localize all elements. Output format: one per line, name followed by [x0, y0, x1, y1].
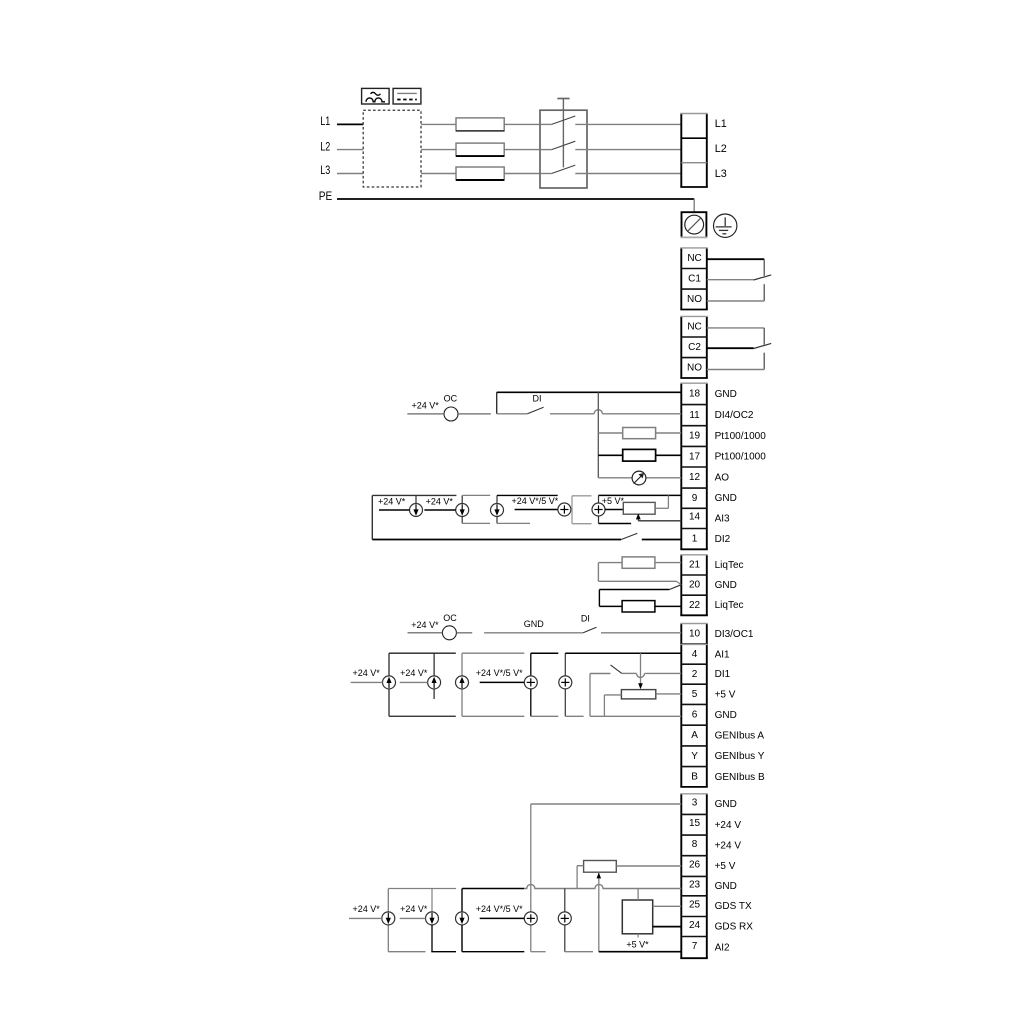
svg-text:NO: NO: [687, 363, 702, 374]
svg-text:OC: OC: [443, 613, 457, 623]
svg-text:A: A: [691, 730, 698, 741]
svg-text:+24 V*/5 V*: +24 V*/5 V*: [476, 904, 523, 914]
svg-text:LiqTec: LiqTec: [715, 600, 744, 611]
svg-text:+5 V*: +5 V*: [626, 940, 649, 950]
svg-text:C1: C1: [688, 274, 701, 285]
svg-text:2: 2: [692, 669, 698, 680]
svg-text:+24 V: +24 V: [715, 840, 742, 851]
svg-text:AI3: AI3: [715, 513, 730, 524]
svg-text:GND: GND: [715, 881, 737, 892]
svg-text:DI: DI: [581, 613, 590, 623]
svg-text:+24 V*: +24 V*: [400, 668, 428, 678]
svg-text:21: 21: [689, 560, 701, 571]
svg-text:19: 19: [689, 431, 701, 442]
svg-text:DI: DI: [533, 394, 542, 404]
svg-text:+24 V*: +24 V*: [353, 668, 381, 678]
svg-text:GDS RX: GDS RX: [715, 922, 754, 933]
svg-text:20: 20: [689, 580, 701, 591]
svg-text:17: 17: [689, 451, 701, 462]
svg-text:DI3/OC1: DI3/OC1: [715, 629, 754, 640]
svg-text:+24 V*: +24 V*: [353, 904, 381, 914]
svg-text:24: 24: [689, 920, 701, 931]
svg-text:12: 12: [689, 472, 701, 483]
svg-text:3: 3: [692, 798, 698, 809]
svg-text:Pt100/1000: Pt100/1000: [715, 452, 767, 463]
svg-text:5: 5: [692, 689, 698, 700]
svg-text:+24 V*: +24 V*: [412, 400, 440, 410]
svg-text:+24 V*/5 V*: +24 V*/5 V*: [512, 496, 559, 506]
svg-text:LiqTec: LiqTec: [715, 560, 744, 571]
svg-text:GND: GND: [715, 580, 737, 591]
svg-text:+24 V*: +24 V*: [411, 620, 439, 630]
svg-text:+24 V*: +24 V*: [400, 904, 428, 914]
svg-text:L2: L2: [320, 141, 330, 153]
svg-text:AO: AO: [715, 473, 730, 484]
svg-text:7: 7: [692, 941, 698, 952]
svg-text:14: 14: [689, 512, 701, 523]
svg-text:GND: GND: [715, 493, 737, 504]
svg-text:OC: OC: [444, 394, 458, 404]
svg-text:DI1: DI1: [715, 669, 731, 680]
svg-text:DI4/OC2: DI4/OC2: [715, 410, 754, 421]
svg-text:GENIbus Y: GENIbus Y: [715, 751, 765, 762]
svg-text:8: 8: [692, 839, 698, 850]
svg-text:9: 9: [692, 493, 698, 504]
svg-text:10: 10: [689, 629, 701, 640]
svg-text:+24 V*/5 V*: +24 V*/5 V*: [476, 668, 523, 678]
svg-text:GND: GND: [524, 619, 545, 629]
svg-text:PE: PE: [319, 191, 333, 203]
svg-text:Y: Y: [691, 751, 698, 762]
svg-text:Pt100/1000: Pt100/1000: [715, 431, 767, 442]
svg-text:NC: NC: [687, 253, 701, 264]
svg-text:18: 18: [689, 389, 701, 400]
svg-text:15: 15: [689, 818, 701, 829]
svg-text:C2: C2: [688, 342, 701, 353]
svg-text:GND: GND: [715, 710, 737, 721]
svg-text:22: 22: [689, 600, 701, 611]
svg-text:B: B: [691, 771, 698, 782]
svg-text:AI1: AI1: [715, 649, 730, 660]
svg-text:+24 V*: +24 V*: [378, 497, 406, 507]
svg-text:GENIbus B: GENIbus B: [715, 772, 765, 783]
svg-text:GND: GND: [715, 389, 737, 400]
svg-text:NC: NC: [687, 322, 701, 333]
svg-text:6: 6: [692, 709, 698, 720]
svg-text:26: 26: [689, 859, 701, 870]
svg-text:GND: GND: [715, 799, 737, 810]
svg-text:GENIbus A: GENIbus A: [715, 731, 765, 742]
svg-text:L1: L1: [715, 118, 727, 130]
svg-text:+24 V: +24 V: [715, 820, 742, 831]
svg-text:AI2: AI2: [715, 942, 730, 953]
svg-text:11: 11: [689, 410, 700, 421]
svg-text:L2: L2: [715, 143, 727, 155]
svg-text:L1: L1: [320, 116, 330, 128]
svg-text:1: 1: [692, 534, 698, 545]
svg-text:+5 V: +5 V: [715, 689, 736, 700]
svg-text:+5 V*: +5 V*: [602, 496, 625, 506]
svg-text:NO: NO: [687, 294, 702, 305]
svg-text:+5 V: +5 V: [715, 861, 736, 872]
svg-text:DI2: DI2: [715, 534, 731, 545]
svg-text:25: 25: [689, 900, 701, 911]
svg-text:L3: L3: [715, 168, 727, 180]
svg-text:+24 V*: +24 V*: [426, 497, 454, 507]
svg-text:L3: L3: [320, 165, 330, 177]
svg-text:GDS TX: GDS TX: [715, 901, 752, 912]
svg-text:23: 23: [689, 880, 701, 891]
svg-text:4: 4: [692, 649, 698, 660]
